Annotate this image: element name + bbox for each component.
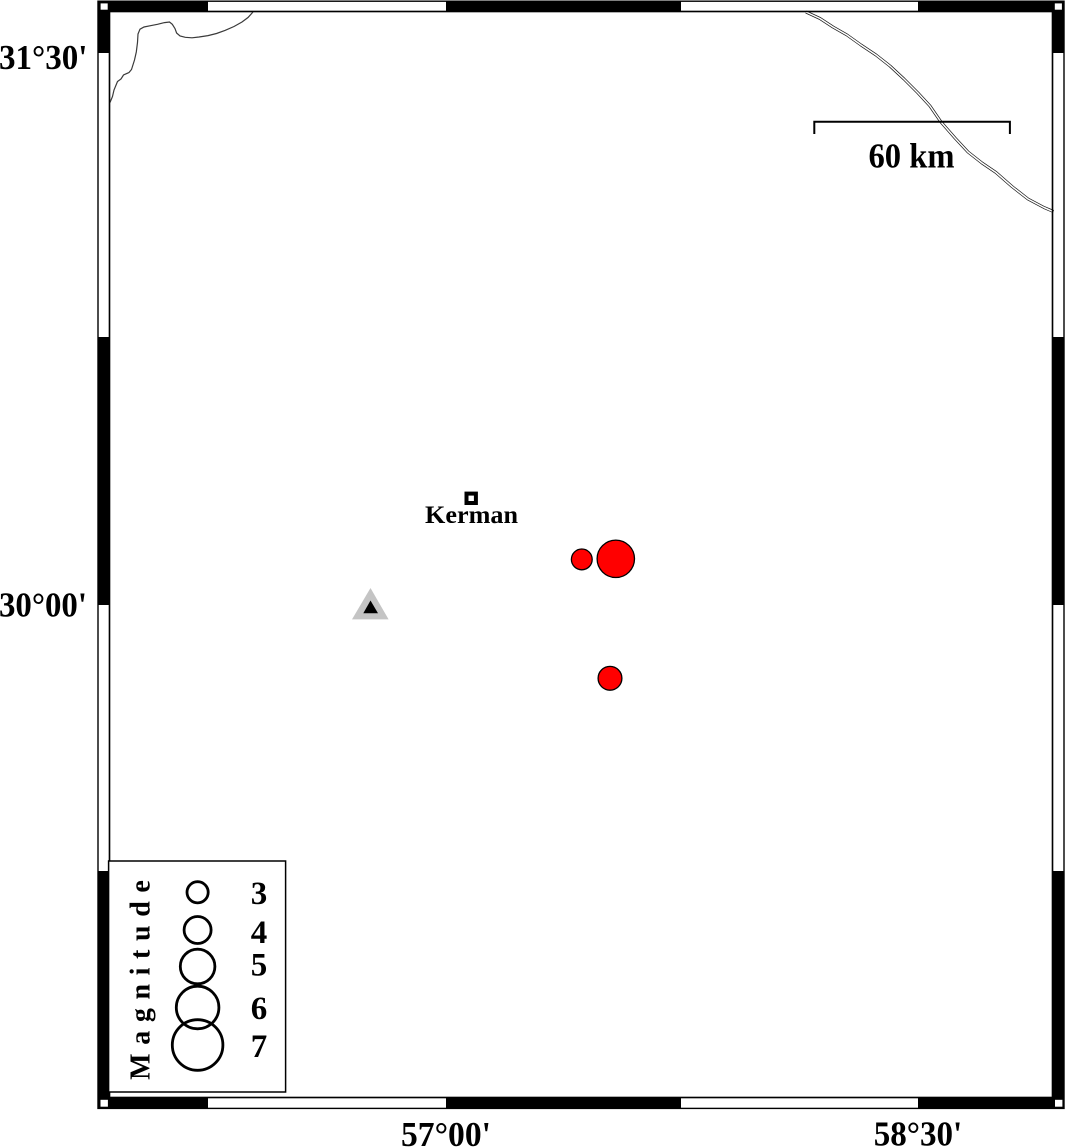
svg-text:31°30': 31°30' xyxy=(0,38,88,77)
svg-text:60 km: 60 km xyxy=(869,137,955,176)
svg-text:6: 6 xyxy=(251,991,268,1027)
svg-text:30°00': 30°00' xyxy=(0,585,87,624)
svg-text:5: 5 xyxy=(251,947,268,983)
svg-text:Kerman: Kerman xyxy=(425,500,518,529)
svg-text:7: 7 xyxy=(251,1029,268,1065)
svg-text:57°00': 57°00' xyxy=(401,1115,491,1147)
svg-text:4: 4 xyxy=(251,915,268,951)
svg-text:58°30': 58°30' xyxy=(874,1114,963,1147)
svg-text:3: 3 xyxy=(251,876,268,912)
